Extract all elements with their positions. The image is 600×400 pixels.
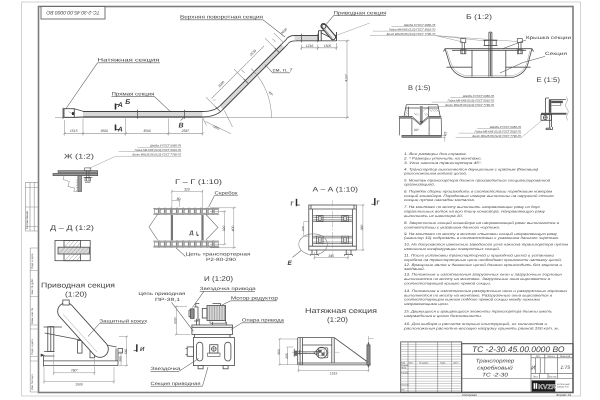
svg-text:Изм.: Изм. — [401, 362, 406, 365]
svg-text:Лист: Лист — [533, 376, 539, 379]
svg-text:Подп. и дата: Подп. и дата — [31, 339, 34, 355]
svg-text:Д – Д (1:2): Д – Д (1:2) — [50, 225, 94, 232]
svg-text:Д: Д — [190, 231, 194, 237]
svg-text:Цепь приводная: Цепь приводная — [138, 291, 186, 296]
svg-text:Защитный кожух: Защитный кожух — [99, 318, 148, 323]
svg-text:3. Угол наклона транспортера: 3. Угол наклона транспортера 45°. — [404, 161, 482, 165]
svg-text:1. Все размеры для справок.: 1. Все размеры для справок. — [404, 152, 467, 156]
svg-text:Гайка М8-6Н5 (S13) ГОСТ 5915-7: Гайка М8-6Н5 (S13) ГОСТ 5915-70 — [135, 148, 182, 152]
svg-text:Е: Е — [288, 260, 293, 267]
svg-text:А: А — [117, 102, 123, 109]
svg-text:скребков на транспортерные цеп: скребков на транспортерные цепи необходи… — [404, 258, 562, 262]
svg-text:Подп. и дата: Подп. и дата — [31, 253, 34, 269]
svg-text:Опара привода: Опара привода — [242, 318, 285, 323]
svg-text:Гайка М8-6Н5 (S13) ГОСТ 5915-7: Гайка М8-6Н5 (S13) ГОСТ 5915-70 — [475, 129, 522, 133]
svg-text:1515: 1515 — [70, 129, 78, 133]
svg-text:2587: 2587 — [181, 129, 190, 133]
svg-text:Цепь транспортерная: Цепь транспортерная — [186, 251, 252, 256]
svg-text:Формат А2: Формат А2 — [556, 393, 571, 397]
svg-text:(швеллер 10) подрезать в соотв: (швеллер 10) подрезать в соответствии с … — [404, 236, 559, 240]
svg-text:400: 400 — [231, 226, 235, 232]
svg-text:Скребок: Скребок — [215, 190, 239, 195]
svg-text:Ж (1:2): Ж (1:2) — [64, 154, 94, 161]
svg-text:90*: 90* — [414, 128, 420, 132]
svg-text:расположения расчетно-весовую: расположения расчетно-весовую нагрузку п… — [403, 326, 559, 330]
svg-text:Болт М8х25.58 (S13) ГОСТ 7798-: Болт М8х25.58 (S13) ГОСТ 7798-70 — [132, 152, 181, 156]
svg-text:2. * Размеры уточнить на монт: 2. * Размеры уточнить на монтаже. — [403, 156, 482, 160]
svg-text:И: И — [531, 366, 535, 372]
svg-text:соответствии с указанием данно: соответствии с указанием данного чертежа… — [404, 225, 500, 229]
svg-text:1500: 1500 — [75, 382, 83, 386]
svg-text:Пров.: Пров. — [401, 367, 407, 370]
svg-text:№ докум.: № докум. — [419, 362, 429, 365]
svg-text:1:75: 1:75 — [560, 365, 570, 371]
svg-text:скребковый: скребковый — [477, 366, 513, 372]
svg-text:Листов: Листов — [549, 376, 557, 379]
svg-text:Приводная секция: Приводная секция — [41, 283, 115, 290]
svg-text:190: 190 — [301, 226, 305, 231]
svg-text:Инв. № подл.: Инв. № подл. — [31, 374, 34, 390]
svg-text:Взам. инв. №: Взам. инв. № — [31, 308, 34, 324]
svg-text:А: А — [117, 127, 123, 134]
svg-text:265: 265 — [118, 356, 122, 363]
svg-text:340: 340 — [328, 254, 334, 258]
svg-text:ТС -2-30: ТС -2-30 — [482, 373, 508, 379]
svg-text:И (1:20): И (1:20) — [204, 275, 233, 283]
svg-text:Масштаб: Масштаб — [560, 355, 571, 358]
svg-text:секции путем накладки металла.: секции путем накладки металла. — [404, 198, 475, 202]
svg-text:Лит.: Лит. — [536, 355, 541, 358]
svg-text:выполнить из швеллера 10.: выполнить из швеллера 10. — [404, 214, 463, 218]
svg-text:Транспортер: Транспортер — [476, 359, 515, 365]
svg-text:3500: 3500 — [143, 129, 151, 133]
svg-text:В (1:5): В (1:5) — [408, 85, 431, 92]
svg-text:изменения конфигурации поворот: изменения конфигурации поворотных секций… — [404, 247, 500, 251]
svg-text:(1:20): (1:20) — [327, 316, 348, 324]
svg-text:4107: 4107 — [345, 74, 349, 82]
svg-text:Б (1:2): Б (1:2) — [466, 14, 492, 21]
svg-text:Шайба 8 ГОСТ 6958-78: Шайба 8 ГОСТ 6958-78 — [490, 125, 522, 129]
svg-text:1515: 1515 — [330, 372, 338, 376]
svg-text:организацией.: организацией. — [404, 183, 435, 187]
svg-text:ТС -2-30.45.00.0000 ВО: ТС -2-30.45.00.0000 ВО — [472, 345, 565, 354]
svg-text:255: 255 — [285, 353, 289, 360]
svg-text:Копировал: Копировал — [462, 393, 477, 397]
svg-text:Звездочка привода: Звездочка привода — [200, 286, 257, 291]
svg-text:(1:20): (1:20) — [65, 291, 87, 299]
svg-text:расположением ветвей цепей.: расположением ветвей цепей. — [403, 172, 467, 176]
svg-text:560: 560 — [124, 349, 128, 355]
svg-text:ТС-2-30.45.00.0000 ВО: ТС-2-30.45.00.0000 ВО — [46, 9, 99, 15]
svg-text:3500: 3500 — [101, 129, 109, 133]
svg-text:Б: Б — [125, 99, 130, 106]
svg-text:320: 320 — [222, 226, 226, 232]
svg-text:Болт М8х25.58 (S13) ГОСТ 7798-: Болт М8х25.58 (S13) ГОСТ 7798-70 — [445, 103, 494, 107]
svg-text:Натяжная секция: Натяжная секция — [305, 308, 377, 315]
svg-text:Гайка М8-6Н5 (S13) ГОСТ 5915-7: Гайка М8-6Н5 (S13) ГОСТ 5915-70 — [389, 27, 436, 31]
svg-text:KVZR: KVZR — [538, 384, 556, 391]
svg-text:Подп.: Подп. — [440, 362, 446, 365]
svg-text:награждения в целях безопаснос: награждения в целях безопасности. — [404, 314, 482, 318]
svg-text:380: 380 — [360, 225, 364, 231]
svg-text:А – А (1:10): А – А (1:10) — [313, 187, 359, 194]
svg-text:Звездочка: Звездочка — [151, 366, 182, 371]
svg-text:КОТЕЛЬНЫЙ: КОТЕЛЬНЫЙ — [557, 383, 570, 386]
svg-text:Масса: Масса — [547, 355, 555, 358]
svg-text:12. Вращение валов и движение: 12. Вращение валов и движение цепей долж… — [404, 263, 562, 267]
svg-text:заеданий.: заеданий. — [403, 267, 425, 271]
svg-text:Болт М8х25.58 (S13) ГОСТ 7798-: Болт М8х25.58 (S13) ГОСТ 7798-70 — [387, 32, 436, 36]
svg-text:Инв. № дубл.: Инв. № дубл. — [31, 278, 34, 294]
svg-text:Г – Г (1:10): Г – Г (1:10) — [175, 179, 222, 186]
svg-text:320: 320 — [184, 188, 190, 192]
svg-text:80: 80 — [177, 197, 181, 201]
svg-text:Шайба 8 ГОСТ 6958-78: Шайба 8 ГОСТ 6958-78 — [150, 143, 182, 147]
svg-text:И: И — [140, 346, 145, 353]
svg-text:ПР-38,1: ПР-38,1 — [155, 297, 181, 302]
svg-text:Крышка секции: Крышка секции — [526, 35, 572, 40]
svg-text:В: В — [179, 123, 184, 130]
svg-text:направляющими цепи.: направляющими цепи. — [404, 302, 449, 306]
svg-text:4,5: 4,5 — [444, 131, 448, 136]
svg-text:Лист: Лист — [409, 362, 414, 365]
svg-text:Шайба 8 ГОСТ 6958-78: Шайба 8 ГОСТ 6958-78 — [463, 94, 495, 98]
svg-text:1505: 1505 — [324, 44, 332, 48]
svg-text:Болт М8х25.58 (S13) ГОСТ 7798-: Болт М8х25.58 (S13) ГОСТ 7798-70 — [472, 134, 521, 138]
svg-text:Гайка М8-6Н5 (S13) ГОСТ 5915-7: Гайка М8-6Н5 (S13) ГОСТ 5915-70 — [448, 98, 495, 102]
svg-text:780*: 780* — [71, 369, 79, 373]
svg-text:Согласовано: Согласовано — [25, 211, 29, 229]
svg-text:соответствующей крышке прямой: соответствующей крышке прямой секции. — [404, 281, 491, 285]
svg-text:Шайба 8 ГОСТ 6958-78: Шайба 8 ГОСТ 6958-78 — [404, 23, 436, 27]
svg-text:Утв.: Утв. — [401, 389, 406, 392]
svg-text:560: 560 — [277, 349, 281, 355]
svg-text:Н.контр.: Н.контр. — [401, 384, 410, 387]
svg-text:Т.контр.: Т.контр. — [401, 372, 409, 375]
svg-text:Дата: Дата — [454, 362, 460, 365]
svg-text:ЗАВОД. РУП: ЗАВОД. РУП — [557, 386, 569, 389]
svg-text:6. Порядок сборки производить: 6. Порядок сборки производить в соответс… — [404, 190, 553, 194]
svg-text:см. п. 7: см. п. 7 — [273, 68, 294, 73]
svg-text:Секция: Секция — [545, 51, 568, 56]
svg-text:1216: 1216 — [306, 44, 314, 48]
svg-text:Секция приводная: Секция приводная — [151, 381, 202, 386]
svg-text:Е (1:5): Е (1:5) — [537, 77, 561, 84]
svg-text:Р2-80-290: Р2-80-290 — [206, 257, 237, 262]
svg-text:608*: 608* — [174, 316, 178, 324]
svg-text:Мотор редуктор: Мотор редуктор — [231, 296, 279, 301]
